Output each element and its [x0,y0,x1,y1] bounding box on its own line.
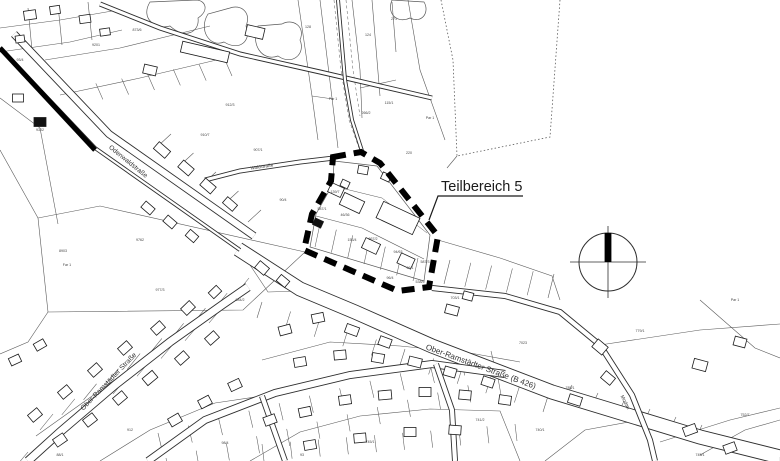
parcel-number: 741/2 [476,418,485,422]
b426-road [238,249,780,457]
parcel-number: 98/4 [222,441,229,445]
street-label: Ober-Ramstädter Straße [80,352,139,412]
parcel-number: 266/2 [362,111,371,115]
modau-corridor [432,288,655,461]
parcel-number: 9762 [136,238,144,242]
parcel-number: 703/1 [451,296,460,300]
parcel-number: 745/1 [696,453,705,457]
parcel-number: 873/6 [133,28,142,32]
parcel-number: Par 1 [329,97,338,101]
parcel-number: 587/3 [421,260,430,264]
parcel-number: 7023 [519,341,527,345]
parcel-number: 94/63 [394,250,403,254]
railway-casing [0,48,240,250]
parcel-number: 912 [127,428,133,432]
north-compass-icon [570,226,646,298]
parcel-number: 220 [406,151,412,155]
parcel-number: 139/7 [331,190,340,194]
parcel-number: 867/2 [369,237,378,241]
parcel-number: 88/1 [57,453,64,457]
parcel-number: 752/7 [741,413,750,417]
parcel-number: 587/1 [318,207,327,211]
parcel-number: 745/1 [366,440,375,444]
parcel-number: 124 [365,33,371,37]
parcel-number: 9201 [92,43,100,47]
parcel-number: 977/3 [156,288,165,292]
top-diagonal-road [100,4,432,98]
parcel-number: 538/5 [416,280,425,284]
compass-north-bar [605,233,612,262]
cadastral-map: Teilbereich 5 OdenwaldstraßeOber-Ramstäd… [0,0,780,461]
parcel-number: 740/1 [536,428,545,432]
odenwaldstrasse-road [14,34,254,236]
parcel-number: 912/3 [226,103,235,107]
parcel-number: 46/36 [341,213,350,217]
parcel-number: 785/1 [566,386,575,390]
parcel-number: 779/1 [636,329,645,333]
teilbereich-annotation: Teilbereich 5 [429,179,523,220]
teilbereich-label: Teilbereich 5 [441,179,522,195]
parcel-number: 984/2 [236,298,245,302]
parcel-number: 115/1 [385,101,394,105]
parcel-number: 96/1 [407,266,414,270]
parcel-number: 907/1 [254,148,263,152]
parcel-number: 128 [305,25,311,29]
parcel-number: 9302 [36,128,44,132]
parcel-number: Par 1 [426,116,435,120]
parcel-number: 93 [300,453,304,457]
parcel-number: 153/4 [348,238,357,242]
parcel-number: Par 1 [731,298,740,302]
parcel-number: 93/4 [17,58,24,62]
parcel-number: Far 1 [63,263,71,267]
cadastral-map-page: Teilbereich 5 OdenwaldstraßeOber-Ramstäd… [0,0,780,461]
parcel-number: 90/4 [280,198,287,202]
parcel-number: 271 [391,17,397,21]
parcel-number: 8903 [59,249,67,253]
parcel-number: 910/7 [201,133,210,137]
parcel-number: 96/4 [387,276,394,280]
annotation-leader-line [429,196,523,220]
